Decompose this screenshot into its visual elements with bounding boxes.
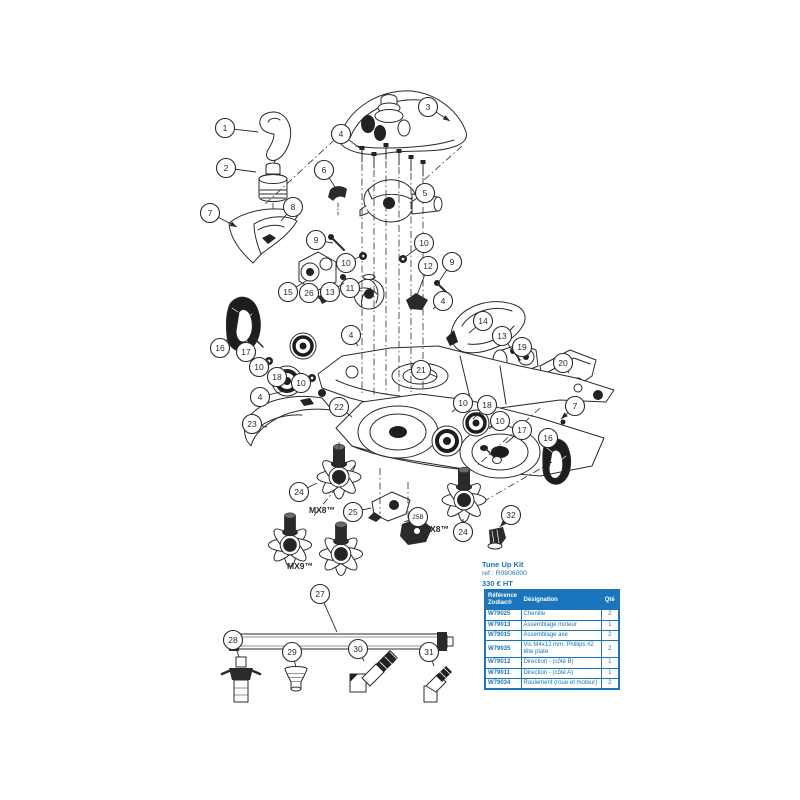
callout-number: 9 xyxy=(450,257,455,267)
callout-13: 13 xyxy=(321,283,345,302)
parts-table-head: Référence Zodiac®DésignationQté xyxy=(485,590,619,610)
callout-number: 4 xyxy=(349,330,354,340)
callout-number: 32 xyxy=(506,510,516,520)
callout-number: 22 xyxy=(334,402,344,412)
reference-cell: W79011 xyxy=(485,668,521,678)
callout-9: 9 xyxy=(307,231,334,250)
callout-number: 1 xyxy=(223,123,228,133)
reference-cell: W79012 xyxy=(485,658,521,668)
callout-4: 4 xyxy=(342,326,361,347)
column-header: Qté xyxy=(601,590,619,610)
callout-number: 24 xyxy=(458,527,468,537)
column-header: Désignation xyxy=(521,590,601,610)
part-bearing-32 xyxy=(488,527,506,549)
callout-number: 7 xyxy=(573,401,578,411)
table-row: W79015Assemblage axe2 xyxy=(485,630,619,640)
callout-31: 31 xyxy=(420,643,439,667)
part-handle-clip xyxy=(260,112,291,160)
callout-number: 10 xyxy=(296,378,306,388)
callout-1: 1 xyxy=(216,119,259,138)
callout-20: 20 xyxy=(554,354,573,374)
exploded-parts-diagram: 1234657891010111291315261617101810441413… xyxy=(0,0,800,800)
callout-30: 30 xyxy=(349,640,368,662)
callout-number: 10 xyxy=(341,258,351,268)
callout-29: 29 xyxy=(283,643,302,668)
callout-number: 23 xyxy=(247,419,257,429)
callout-number: 15 xyxy=(283,287,293,297)
kit-info-block: Tune Up Kit ref : R0806000 330 € HT xyxy=(482,560,527,588)
callout-2: 2 xyxy=(217,159,257,178)
callout-number: 30 xyxy=(353,644,363,654)
part-baffle-tube xyxy=(229,632,453,651)
part-elbow-31 xyxy=(424,666,452,702)
reference-cell: W79035 xyxy=(485,640,521,657)
callout-number: 18 xyxy=(272,372,282,382)
callout-4: 4 xyxy=(433,292,453,311)
callout-7: 7 xyxy=(201,204,239,230)
callout-9: 9 xyxy=(438,253,462,284)
part-valve-28 xyxy=(222,657,260,702)
callout-10: 10 xyxy=(337,254,362,273)
callout-number: 17 xyxy=(517,425,527,435)
callout-number: 14 xyxy=(478,316,488,326)
reference-cell: W79034 xyxy=(485,678,521,689)
parts-table-body: W79025Chenille2W79013Assemblage moteur1W… xyxy=(485,610,619,689)
callout-25: 25 xyxy=(344,503,372,522)
callout-12: 12 xyxy=(416,257,438,299)
designation-cell: Assemblage axe xyxy=(521,630,601,640)
callout-number: 12 xyxy=(423,261,433,271)
callout-number: 7 xyxy=(208,208,213,218)
callout-10: 10 xyxy=(250,358,270,377)
model-label: MX8™ xyxy=(423,524,449,534)
designation-cell: Vis M4x12 mm, Phillips #2 tête plate xyxy=(521,640,601,657)
parts-table: Référence Zodiac®DésignationQté W79025Ch… xyxy=(484,589,620,690)
designation-cell: Chenille xyxy=(521,610,601,620)
callout-22: 22 xyxy=(330,398,353,418)
callout-number: 3 xyxy=(426,102,431,112)
callout-10: 10 xyxy=(404,234,434,259)
callout-number: 16 xyxy=(543,433,553,443)
callout-number: 9 xyxy=(314,235,319,245)
callout-number: 29 xyxy=(287,647,297,657)
table-row: W79011Direction - (côté A)1 xyxy=(485,668,619,678)
callout-19: 19 xyxy=(513,338,532,358)
reference-cell: W79025 xyxy=(485,610,521,620)
callout-number: 10 xyxy=(254,362,264,372)
part-clip-6 xyxy=(328,186,347,215)
callout-24: 24 xyxy=(290,483,318,502)
model-label: MX9™ xyxy=(287,561,313,571)
callout-10: 10 xyxy=(292,374,312,393)
kit-reference: ref : R0806000 xyxy=(482,570,527,579)
callout-number: 19 xyxy=(517,342,527,352)
designation-cell: Assemblage moteur xyxy=(521,620,601,630)
model-label: MX8™ xyxy=(309,505,335,515)
callout-number: 27 xyxy=(315,589,325,599)
callout-number: 18 xyxy=(482,400,492,410)
callout-number: 17 xyxy=(241,347,251,357)
callout-16: 16 xyxy=(211,333,234,358)
callout-6: 6 xyxy=(315,161,336,188)
callout-number: 25 xyxy=(348,507,358,517)
table-row: W79012Direction - (côté B)1 xyxy=(485,658,619,668)
quantity-cell: 1 xyxy=(601,658,619,668)
quantity-cell: 1 xyxy=(601,620,619,630)
callout-number: 31 xyxy=(424,647,434,657)
callout-number: 13 xyxy=(497,331,507,341)
designation-cell: Direction - (côté B) xyxy=(521,658,601,668)
callout-number: 21 xyxy=(416,365,426,375)
callout-number: 5 xyxy=(423,188,428,198)
callout-28: 28 xyxy=(224,631,243,658)
quantity-cell: 2 xyxy=(601,640,619,657)
designation-cell: Roulement (roue et moteur) xyxy=(521,678,601,689)
callout-number: 4 xyxy=(258,392,263,402)
designation-cell: Direction - (côté A) xyxy=(521,668,601,678)
callout-number: 10 xyxy=(458,398,468,408)
table-row: W79034Roulement (roue et moteur)2 xyxy=(485,678,619,689)
parts-catalog-page: 1234657891010111291315261617101810441413… xyxy=(0,0,800,800)
quantity-cell: 2 xyxy=(601,678,619,689)
callout-number: 11 xyxy=(346,283,355,293)
callout-number: 25B xyxy=(412,514,424,521)
part-top-cover xyxy=(338,91,467,155)
callout-number: 20 xyxy=(558,358,568,368)
part-side-fins-left xyxy=(229,209,299,263)
quantity-cell: 2 xyxy=(601,630,619,640)
callout-number: 24 xyxy=(294,487,304,497)
callout-32: 32 xyxy=(498,506,520,529)
quantity-cell: 1 xyxy=(601,668,619,678)
callout-number: 4 xyxy=(339,129,344,139)
quantity-cell: 2 xyxy=(601,610,619,620)
callout-number: 16 xyxy=(215,343,225,353)
reference-cell: W79013 xyxy=(485,620,521,630)
callout-24: 24 xyxy=(454,519,473,542)
callout-number: 13 xyxy=(325,287,335,297)
callout-number: 28 xyxy=(228,635,238,645)
table-row: W79013Assemblage moteur1 xyxy=(485,620,619,630)
callout-number: 4 xyxy=(441,296,446,306)
table-row: W79035Vis M4x12 mm, Phillips #2 tête pla… xyxy=(485,640,619,657)
part-fitting-29 xyxy=(285,667,307,692)
column-header: Référence Zodiac® xyxy=(485,590,521,610)
callout-number: 10 xyxy=(419,238,429,248)
kit-price: 330 € HT xyxy=(482,579,527,589)
callout-number: 6 xyxy=(322,165,327,175)
table-row: W79025Chenille2 xyxy=(485,610,619,620)
callout-number: 26 xyxy=(304,288,314,298)
callout-27: 27 xyxy=(311,585,338,633)
kit-title: Tune Up Kit xyxy=(482,560,527,570)
reference-cell: W79015 xyxy=(485,630,521,640)
callout-number: 2 xyxy=(224,163,229,173)
callout-number: 10 xyxy=(495,416,505,426)
callout-number: 8 xyxy=(291,202,296,212)
